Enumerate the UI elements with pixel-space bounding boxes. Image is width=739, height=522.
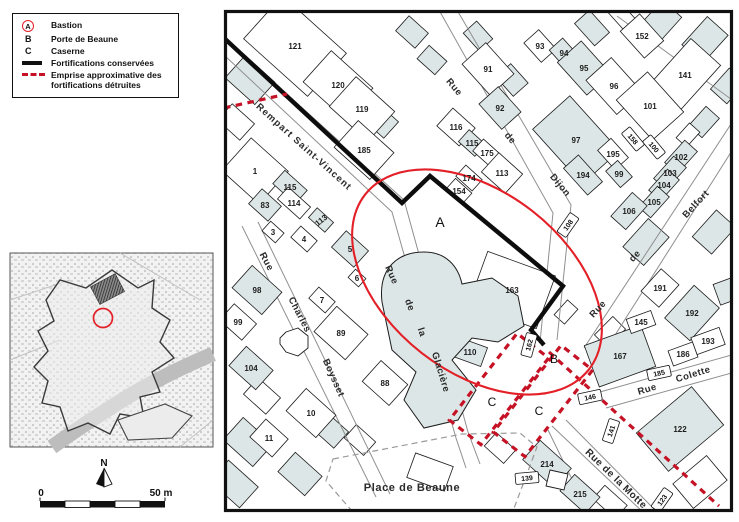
parcel-number: 10 <box>307 409 316 418</box>
parcel-number: 4 <box>302 235 307 244</box>
scale-end-label: 50 m <box>150 488 173 499</box>
parcel-number: 115 <box>466 139 479 148</box>
parcel-number: 110 <box>464 348 477 357</box>
parcel-number: 99 <box>615 170 624 179</box>
parcel-number: 96 <box>610 82 619 91</box>
parcel-number: 3 <box>271 228 276 237</box>
marker-letter-a: A <box>435 214 445 230</box>
parcel-number: 7 <box>320 296 325 305</box>
parcel-number: 191 <box>653 284 667 293</box>
parcel-number: 91 <box>484 65 493 74</box>
parcel-number: 154 <box>452 187 466 196</box>
parcel-number: 89 <box>337 329 346 338</box>
inset-map <box>10 253 213 447</box>
parcel-number: 195 <box>606 150 620 159</box>
parcel-number: 116 <box>450 123 463 132</box>
parcel-number: 167 <box>613 352 627 361</box>
parcel-number: 104 <box>657 181 671 190</box>
parcel-number: 186 <box>676 350 690 359</box>
boxed-street-number: 139 <box>515 472 539 485</box>
parcel-number: 95 <box>580 64 589 73</box>
parcel-number: 106 <box>622 207 636 216</box>
parcel-number: 119 <box>356 105 369 114</box>
parcel-number: 114 <box>288 199 301 208</box>
parcel-number: 97 <box>572 136 581 145</box>
parcel-number: 104 <box>244 364 258 373</box>
parcel-number: 101 <box>643 102 657 111</box>
legend-item-porte: B Porte de Beaune <box>21 34 171 44</box>
scale-bar: 0 50 m <box>38 488 172 508</box>
parcel-number: 6 <box>355 274 360 283</box>
parcel-number: 105 <box>647 198 661 207</box>
map-figure: A Bastion B Porte de Beaune C Caserne Fo… <box>0 0 739 522</box>
red-dashed-line-icon <box>22 73 45 76</box>
parcel-number: 120 <box>331 81 345 90</box>
marker-letter-b: B <box>550 352 558 366</box>
parcel-number: 88 <box>381 379 390 388</box>
parcel-number: 98 <box>253 286 262 295</box>
parcel-number: 174 <box>462 174 476 183</box>
parcel-number: 94 <box>560 49 569 58</box>
parcel-number: 122 <box>673 425 687 434</box>
parcel-number: 11 <box>265 434 274 443</box>
legend: A Bastion B Porte de Beaune C Caserne Fo… <box>12 13 179 98</box>
parcel-number: 193 <box>701 337 715 346</box>
parcel-number: 5 <box>348 245 353 254</box>
parcel-number: 103 <box>663 169 677 178</box>
marker-letter-c: C <box>535 404 544 418</box>
parcel-number: 99 <box>234 318 243 327</box>
parcel-number: 113 <box>496 169 509 178</box>
parcel-number: 93 <box>536 42 545 51</box>
parcel-number: 92 <box>496 104 505 113</box>
legend-item-caserne: C Caserne <box>21 46 171 56</box>
parcel-number: 83 <box>261 201 270 210</box>
north-arrow: N <box>96 458 112 487</box>
marker-letter-c: C <box>488 395 497 409</box>
north-label: N <box>100 458 107 469</box>
legend-item-fortifications: Fortifications conservées <box>21 58 171 68</box>
main-map: 1211201191851161151751741541139192939495… <box>210 0 739 519</box>
parcel-number: 215 <box>573 490 587 499</box>
parcel-number: 152 <box>635 32 649 41</box>
parcel-number: 214 <box>540 460 554 469</box>
svg-text:139: 139 <box>521 475 533 483</box>
street-name: Place de Beaune <box>364 482 460 494</box>
parcel-number: 141 <box>678 71 692 80</box>
parcel-number: 145 <box>634 318 648 327</box>
solid-line-icon <box>22 61 42 65</box>
parcel-number: 175 <box>480 149 494 158</box>
parcel-number: 185 <box>357 146 371 155</box>
parcel-number: 192 <box>685 309 699 318</box>
legend-item-emprise: Emprise approximative des fortifications… <box>21 70 171 90</box>
parcel-number: 194 <box>576 171 590 180</box>
parcel-number: 1 <box>253 167 258 176</box>
parcel-number: 115 <box>284 183 297 192</box>
parcel-number: 163 <box>505 286 519 295</box>
bastion-circle-a-icon: A <box>22 20 34 32</box>
letter-c-icon: C <box>21 46 32 56</box>
scale-start-label: 0 <box>38 488 44 499</box>
letter-b-icon: B <box>21 34 32 44</box>
parcel-number: 121 <box>288 42 302 51</box>
parcel-number: 102 <box>674 153 688 162</box>
small-white-building <box>546 470 568 490</box>
legend-item-bastion: A Bastion <box>21 20 171 32</box>
